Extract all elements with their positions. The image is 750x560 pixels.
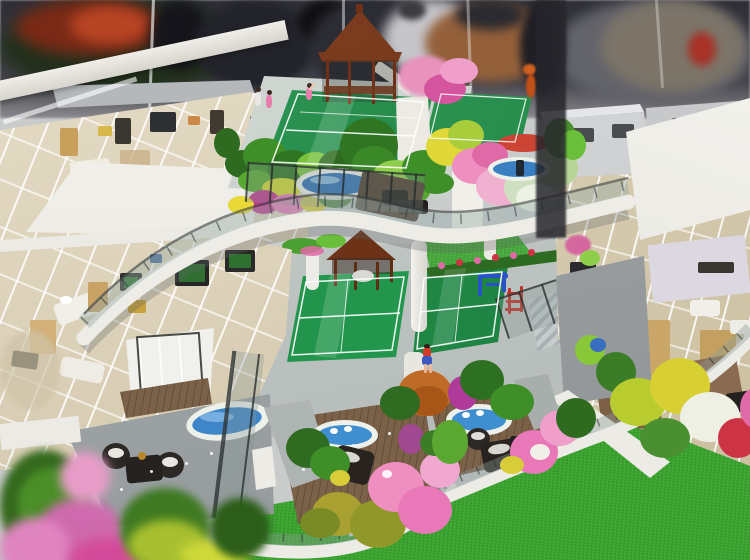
willow [432,420,468,464]
pink-lilies [398,486,452,534]
foreground-bush [210,498,270,558]
shrub [640,418,690,458]
girl-leg [429,364,432,373]
figure-white-dress [255,92,261,106]
bougainvillea-pink [60,452,110,502]
shrub [490,384,534,420]
figure-pink-dress [266,95,272,108]
blue-item [590,338,606,352]
yellow-flowers [330,470,350,486]
orange-sculpture [526,74,536,98]
figure-head [267,90,272,95]
white-flowers [382,470,392,478]
girl-leg [424,364,427,373]
white-flowers [530,444,550,460]
figure-head [256,87,261,92]
yellow-flowers [500,456,524,474]
shrub [380,386,420,420]
olive-bush [300,508,340,538]
shrub [556,398,596,438]
model-photo-canvas [0,0,750,560]
dark-glass-edge [536,0,566,238]
